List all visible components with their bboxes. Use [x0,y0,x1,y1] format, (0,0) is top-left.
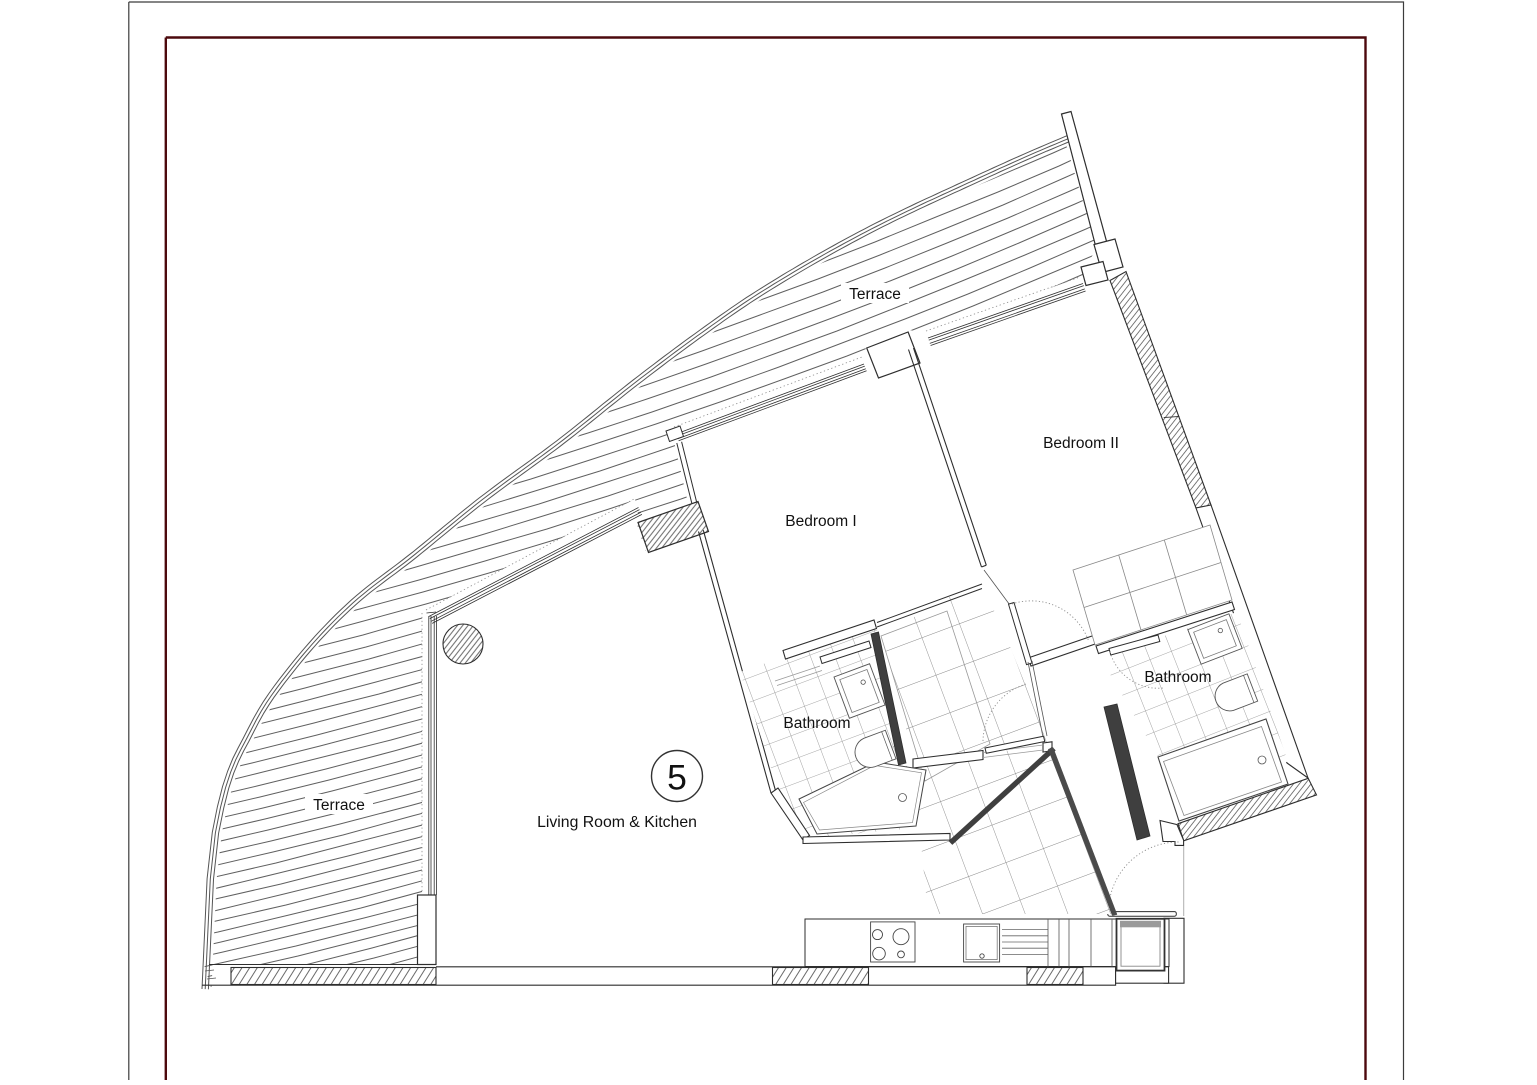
svg-text:Bathroom: Bathroom [783,715,850,732]
svg-text:Terrace: Terrace [313,797,365,814]
svg-text:5: 5 [667,758,687,798]
svg-text:Bedroom II: Bedroom II [1043,435,1119,452]
svg-text:Bedroom I: Bedroom I [785,513,857,530]
svg-text:Terrace: Terrace [849,286,901,303]
svg-text:Bathroom: Bathroom [1144,669,1211,686]
svg-text:Living Room & Kitchen: Living Room & Kitchen [537,814,697,831]
